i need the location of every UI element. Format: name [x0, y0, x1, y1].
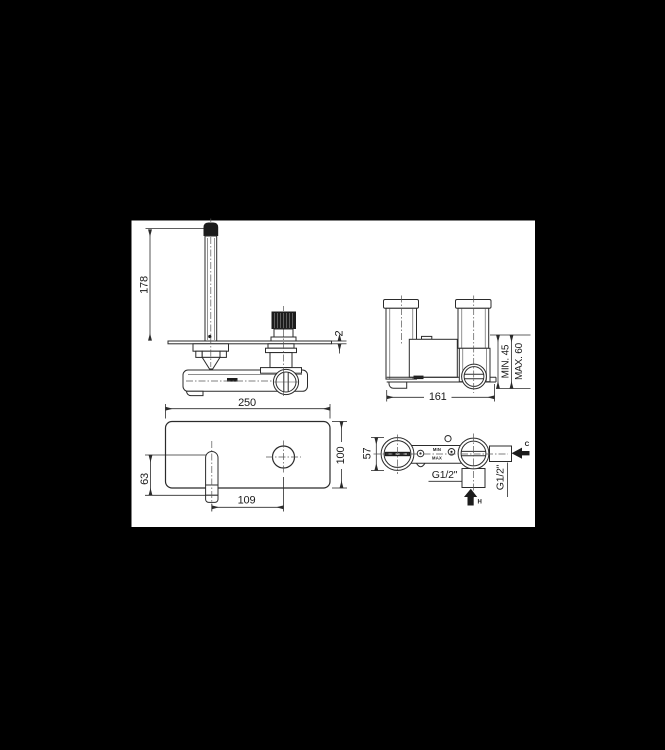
hot-thread-label: G1/2"	[432, 469, 458, 481]
cartridge-min-mark: MIN	[433, 447, 441, 452]
dim-178: 178	[139, 276, 151, 294]
dim-109: 109	[238, 495, 256, 507]
cold-thread-label: G1/2"	[494, 464, 506, 490]
cartridge-max-mark: MAX	[432, 456, 442, 461]
dim-min-depth: MIN. 45	[501, 344, 512, 378]
dim-2: 2	[334, 330, 346, 336]
handle-side	[271, 312, 296, 342]
dim-63: 63	[139, 473, 151, 485]
cold-label: C	[525, 441, 530, 448]
hot-label: H	[478, 500, 482, 506]
dim-57: 57	[362, 448, 374, 460]
cartridge-socket-rear	[456, 300, 492, 349]
dim-161: 161	[429, 391, 447, 403]
technical-drawing: 178 2	[0, 0, 665, 750]
dim-100: 100	[335, 447, 347, 465]
body-box-rear	[409, 336, 457, 379]
dim-250: 250	[238, 397, 256, 409]
dim-max-depth: MAX. 60	[514, 342, 525, 380]
